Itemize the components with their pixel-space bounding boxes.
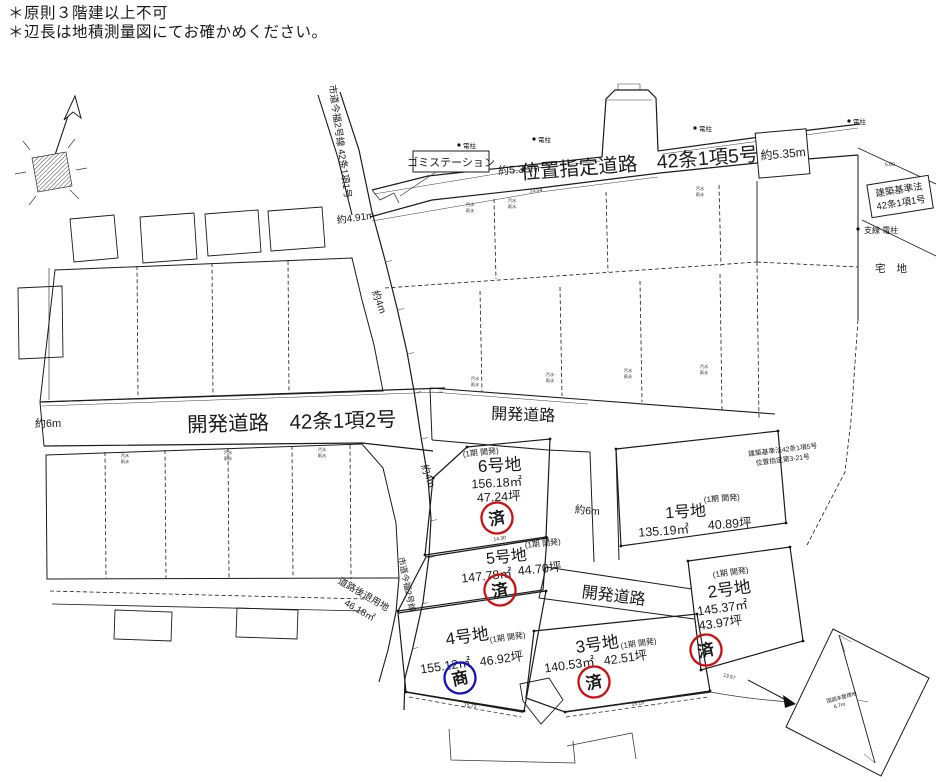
width-491-label: 約4.91m: [336, 208, 375, 226]
utility-mark: 雨水: [700, 369, 709, 376]
utility-mark: 雨水: [696, 191, 705, 198]
house-outlines: [449, 729, 636, 763]
lot-4-polygon: [398, 591, 546, 711]
lot-4-area-tsubo: 46.92坪: [479, 649, 524, 669]
left-block-lower: [46, 444, 399, 641]
width-535-box: 約5.35m: [755, 129, 810, 178]
dim-1519: 15.19: [631, 700, 644, 708]
land-plot-map: 国調未整理地 6.7m 位置指定道路 42条1項5号 約5.35m 約5.35m…: [0, 0, 936, 782]
denchu-label-2: 電柱: [538, 135, 552, 144]
upper-left-parcels: [70, 207, 325, 263]
inset-dim-label: 6.7m: [833, 702, 846, 711]
width-4m-upper: 約4m: [369, 288, 389, 315]
lot-1-phase: (1期 開発): [704, 493, 741, 505]
center-block-parcels: [385, 155, 858, 547]
inset-parcel: 国調未整理地 6.7m: [748, 629, 929, 776]
utility-mark: 雨水: [466, 207, 475, 214]
lot-1-area-tsubo: 40.89坪: [707, 515, 752, 532]
designated-road-label: 位置指定道路 42条1項5号: [520, 144, 759, 185]
denchu-label-4: 電柱: [853, 117, 867, 126]
utility-mark: 雨水: [546, 377, 555, 384]
utility-mark: 雨水: [318, 452, 327, 459]
utility-mark: 汚水: [508, 197, 517, 204]
utility-mark: 汚水: [546, 371, 555, 378]
denchu-label-3: 電柱: [699, 124, 713, 133]
utility-mark: 汚水: [121, 452, 130, 459]
left-block-upper: [18, 258, 383, 402]
city-road-curve: [318, 92, 437, 710]
utility-mark: 汚水: [624, 367, 633, 374]
takuchi-label: 宅 地: [875, 262, 911, 275]
stamp-sold-lot2-text: 済: [696, 638, 717, 661]
utility-mark: 汚水: [318, 446, 327, 453]
dim-1430: 14.30: [493, 535, 506, 543]
lot-4-phase: (1期 開発): [489, 631, 526, 645]
width-6m-left: 約6m: [35, 416, 61, 430]
gomi-station-label: ゴミステーション: [407, 155, 495, 169]
dim-1357: 13.57: [722, 673, 736, 682]
lot-1-name: 1号地: [665, 502, 707, 523]
width-535-label: 約5.35m: [497, 161, 539, 178]
utility-mark: 汚水: [471, 375, 480, 382]
inset-arrow-head: [783, 695, 796, 708]
dim-560: 5.60: [885, 162, 895, 169]
stamp-sold-lot3-text: 済: [584, 670, 605, 693]
utility-mark: 雨水: [224, 455, 233, 462]
utility-mark: 汚水: [466, 201, 475, 208]
dimension-numbers: 13.54 5.60 14.30 15.73 15.19 13.57: [464, 162, 896, 710]
stamp-sold-lot6-text: 済: [487, 506, 508, 529]
lot-3-area-m2: 140.53㎡: [543, 655, 596, 676]
lot-4-name: 4号地: [444, 624, 490, 649]
pole-labels: 電柱 電柱 電柱 電柱 支線 電柱 宅 地: [457, 117, 911, 275]
building-code-box: 建築基準法 42条1項1号: [867, 175, 933, 217]
utility-mark: 汚水: [700, 363, 709, 370]
kaihatsu-main-label: 開発道路 42条1項2号: [187, 408, 397, 436]
denchu-label-1: 電柱: [463, 141, 477, 150]
utility-mark: 雨水: [121, 458, 130, 465]
stamp-sold-lot2: 済: [688, 632, 725, 669]
utility-mark: 汚水: [696, 185, 705, 192]
width-6m-center: 約6m: [574, 503, 600, 518]
stamp-sold-lot6: 済: [479, 500, 516, 537]
utility-mark: 雨水: [624, 373, 633, 380]
city-road-lower-label: 市道今福2号線: [396, 556, 417, 613]
shisen-denchu-label: 支線 電柱: [864, 225, 898, 235]
utility-mark: 雨水: [508, 203, 517, 210]
benchmark-symbol: [15, 139, 87, 205]
dim-1573: 15.73: [464, 702, 478, 710]
utility-mark: 汚水: [224, 449, 233, 456]
lot-6-name: 6号地: [478, 455, 522, 476]
dim-1354: 13.54: [529, 187, 542, 194]
utility-mark: 雨水: [471, 381, 480, 388]
city-road-vertical-label: 市道今福2号線 42条1項1号: [326, 84, 354, 199]
kaihatsu-center-label: 開発道路: [491, 405, 556, 425]
